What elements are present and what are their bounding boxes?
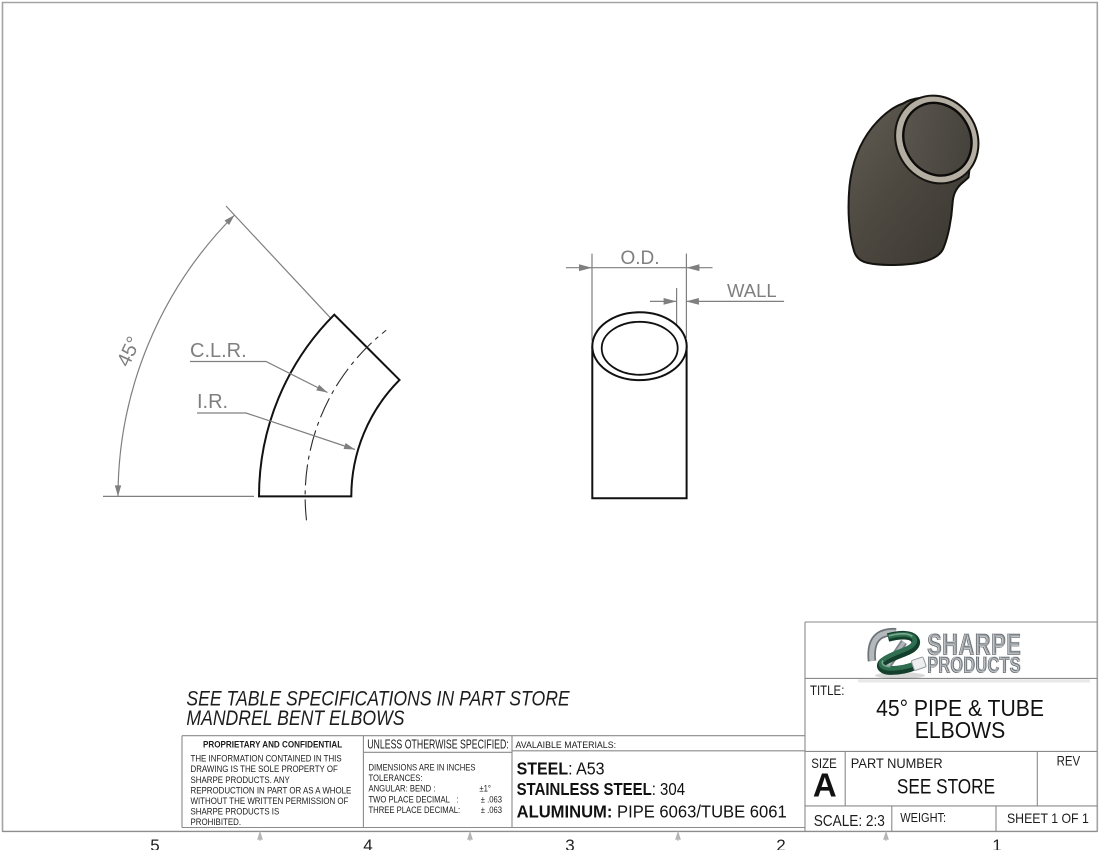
- svg-text:ANGULAR: BEND :: ANGULAR: BEND :: [369, 783, 436, 794]
- svg-text:SHARPE PRODUCTS. ANY: SHARPE PRODUCTS. ANY: [191, 774, 291, 785]
- svg-text:THE INFORMATION CONTAINED IN T: THE INFORMATION CONTAINED IN THIS: [191, 753, 343, 764]
- svg-text:SEE STORE: SEE STORE: [897, 776, 995, 799]
- svg-text:ELBOWS: ELBOWS: [915, 717, 1005, 743]
- svg-text:± .063: ± .063: [481, 794, 502, 805]
- svg-text:5: 5: [150, 836, 159, 850]
- svg-text:DRAWING IS THE SOLE PROPERTY O: DRAWING IS THE SOLE PROPERTY OF: [191, 764, 338, 775]
- svg-text:PROPRIETARY AND CONFIDENTIAL: PROPRIETARY AND CONFIDENTIAL: [203, 739, 342, 749]
- svg-text:TWO PLACE DECIMAL :: TWO PLACE DECIMAL :: [369, 794, 459, 805]
- svg-text:TOLERANCES:: TOLERANCES:: [369, 772, 423, 783]
- svg-text:UNLESS OTHERWISE SPECIFIED:: UNLESS OTHERWISE SPECIFIED:: [367, 738, 509, 752]
- svg-text:4: 4: [363, 836, 372, 850]
- svg-text:STAINLESS STEEL: 304: STAINLESS STEEL: 304: [517, 780, 685, 799]
- svg-text:REPRODUCTION IN PART OR AS A W: REPRODUCTION IN PART OR AS A WHOLE: [191, 785, 352, 796]
- svg-text:SCALE: 2:3: SCALE: 2:3: [814, 813, 885, 830]
- svg-text:THREE PLACE DECIMAL:: THREE PLACE DECIMAL:: [369, 804, 461, 815]
- svg-text:PART NUMBER: PART NUMBER: [851, 756, 943, 771]
- svg-text:2: 2: [776, 836, 785, 850]
- svg-text:3: 3: [565, 836, 574, 850]
- svg-text:PRODUCTS: PRODUCTS: [928, 652, 1022, 677]
- svg-text:SHARPE PRODUCTS IS: SHARPE PRODUCTS IS: [191, 806, 280, 817]
- svg-text:AVALAIBLE MATERIALS:: AVALAIBLE MATERIALS:: [516, 740, 617, 750]
- svg-text:WITHOUT THE WRITTEN PERMISSION: WITHOUT THE WRITTEN PERMISSION OF: [191, 796, 349, 807]
- svg-text:WEIGHT:: WEIGHT:: [900, 811, 946, 825]
- svg-text:STEEL: A53: STEEL: A53: [517, 759, 605, 779]
- svg-text:DIMENSIONS ARE IN INCHES: DIMENSIONS ARE IN INCHES: [369, 761, 476, 772]
- svg-text:PROHIBITED.: PROHIBITED.: [191, 817, 242, 828]
- svg-text:A: A: [813, 766, 837, 803]
- svg-text:WALL: WALL: [727, 280, 777, 301]
- svg-text:1: 1: [992, 836, 1001, 850]
- svg-text:ALUMINUM: PIPE 6063/TUBE 6061: ALUMINUM: PIPE 6063/TUBE 6061: [517, 802, 787, 821]
- svg-text:±1°: ±1°: [479, 783, 491, 794]
- svg-text:REV: REV: [1057, 754, 1081, 769]
- svg-text:TITLE:: TITLE:: [810, 683, 844, 698]
- svg-text:MANDREL BENT ELBOWS: MANDREL BENT ELBOWS: [186, 706, 404, 730]
- svg-text:C.L.R.: C.L.R.: [190, 340, 247, 362]
- svg-text:I.R.: I.R.: [197, 391, 228, 413]
- svg-text:SHEET 1 OF 1: SHEET 1 OF 1: [1007, 810, 1089, 826]
- svg-text:O.D.: O.D.: [620, 248, 659, 269]
- svg-text:± .063: ± .063: [481, 804, 502, 815]
